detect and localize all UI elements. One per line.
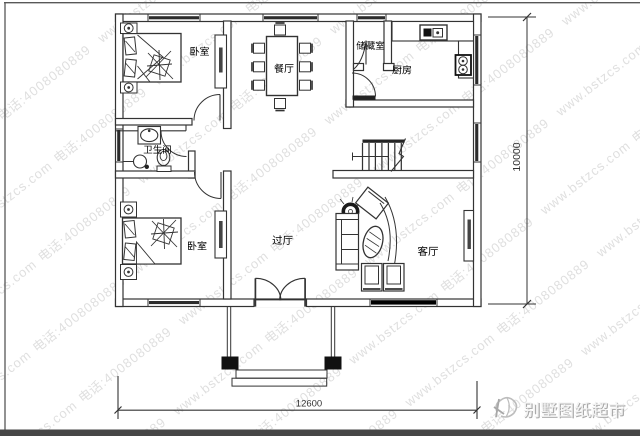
svg-text:12600: 12600 — [296, 399, 322, 410]
svg-text:10000: 10000 — [511, 142, 523, 171]
